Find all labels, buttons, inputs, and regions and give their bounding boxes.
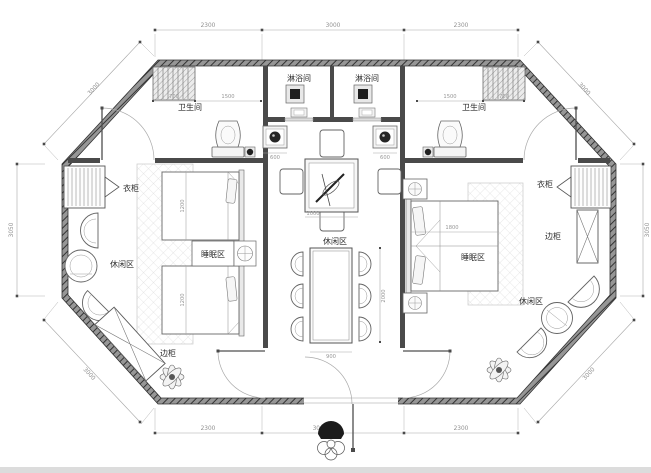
- entrance-opening: [304, 396, 398, 406]
- bed-left-1: 1200: [162, 170, 244, 242]
- toilet-left: [212, 121, 244, 157]
- shower-room-left: 淋浴间: [286, 73, 311, 117]
- dining-chair: [359, 252, 371, 276]
- bathroom-left: 700 1500 卫生间: [152, 67, 262, 157]
- side-cabinet-right-label: 边柜: [545, 231, 561, 241]
- shower-left-label: 淋浴间: [287, 73, 311, 83]
- washbasin-right: 600: [373, 126, 397, 161]
- dim-bottom-left: 2300: [201, 426, 216, 432]
- bottom-edge-bar: [0, 467, 651, 473]
- toilet-right: [434, 121, 466, 157]
- dim-top-right: 2300: [454, 23, 469, 29]
- bathroom-right: 1500 700 卫生间: [416, 67, 525, 157]
- leisure-left-label: 休闲区: [110, 259, 134, 269]
- stool-left: [280, 169, 303, 194]
- dim-bottom-right: 2300: [454, 426, 469, 432]
- side-cabinet-right: [577, 210, 598, 263]
- dim-bed-left-1: 1200: [180, 199, 186, 212]
- dim-basin-left: 600: [270, 155, 280, 161]
- plant-left: [160, 365, 184, 389]
- dim-tea-table: 1000: [306, 211, 319, 217]
- bedroom-right: 1800 睡眠区 衣柜 边柜 休闲区: [403, 166, 611, 382]
- dim-dining-width: 900: [326, 354, 336, 360]
- dim-bed-right: 1800: [445, 225, 458, 231]
- dim-diag-top-right: 3000: [577, 82, 592, 97]
- dim-side-left: 3050: [9, 222, 15, 237]
- bathroom-left-label: 卫生间: [178, 102, 202, 112]
- dim-tray-right: 700: [499, 94, 509, 100]
- dim-diag-top-left: 3000: [87, 82, 102, 97]
- dining-chair: [291, 284, 303, 308]
- floor-plan-canvas: 2300 3000 2300 2300 3000 2300 3050 3050 …: [0, 0, 651, 473]
- dim-bath-right: 1500: [443, 94, 456, 100]
- shower-right-sliding-door: [353, 118, 381, 121]
- wardrobe-right: [557, 166, 611, 208]
- dim-dining-length: 2000: [381, 289, 387, 302]
- dim-top-center: 3000: [326, 23, 341, 29]
- dim-diag-bottom-left: 3000: [82, 367, 97, 382]
- side-cabinet-left-label: 边柜: [160, 348, 176, 358]
- dim-top-left: 2300: [201, 23, 216, 29]
- wardrobe-left: [64, 166, 119, 208]
- dim-diag-bottom-right: 3000: [582, 367, 597, 382]
- dining-set: 2000 900: [291, 247, 387, 360]
- floor-plan-drawing: 2300 3000 2300 2300 3000 2300 3050 3050 …: [0, 0, 651, 473]
- bathroom-right-label: 卫生间: [462, 102, 486, 112]
- nightstand-right-top: [403, 179, 427, 199]
- entrance-statue: [318, 421, 345, 460]
- lounge-chair-right-3: [517, 328, 547, 358]
- dimension-right: 3050: [620, 163, 651, 298]
- dining-chair: [359, 317, 371, 341]
- sleep-left-label: 睡眠区: [201, 250, 225, 259]
- shower-room-right: 淋浴间: [354, 73, 379, 117]
- dining-chair: [291, 317, 303, 341]
- dim-tray-left: 700: [169, 94, 179, 100]
- wardrobe-right-label: 衣柜: [537, 179, 553, 189]
- dining-chair: [359, 284, 371, 308]
- dimension-top: 2300 3000 2300: [154, 23, 520, 63]
- dim-basin-right: 600: [380, 155, 390, 161]
- lounge-chair-right-1: [568, 276, 599, 307]
- bed-left-2: 1200: [162, 264, 244, 336]
- shower-left-sliding-door: [285, 118, 313, 121]
- dim-bath-left: 1500: [221, 94, 234, 100]
- bed-right: 1800: [406, 199, 498, 293]
- dim-side-right: 3050: [645, 222, 651, 237]
- stool-right: [378, 169, 401, 194]
- dining-chair: [291, 252, 303, 276]
- leisure-center-label: 休闲区: [323, 236, 347, 246]
- lamp-table-left: [234, 241, 256, 266]
- stool-top: [320, 130, 344, 157]
- dim-bed-left-2: 1200: [180, 293, 186, 306]
- bedroom-left: 1200 1200 睡眠区 衣柜 休闲区: [64, 164, 256, 389]
- wardrobe-left-label: 衣柜: [123, 183, 139, 193]
- sleep-right-label: 睡眠区: [461, 253, 485, 262]
- plant-right: [487, 358, 511, 382]
- shower-right-label: 淋浴间: [355, 73, 379, 83]
- dimension-left: 3050: [9, 163, 45, 298]
- leisure-right-label: 休闲区: [519, 296, 543, 306]
- nightstand-right-bottom: [403, 293, 427, 313]
